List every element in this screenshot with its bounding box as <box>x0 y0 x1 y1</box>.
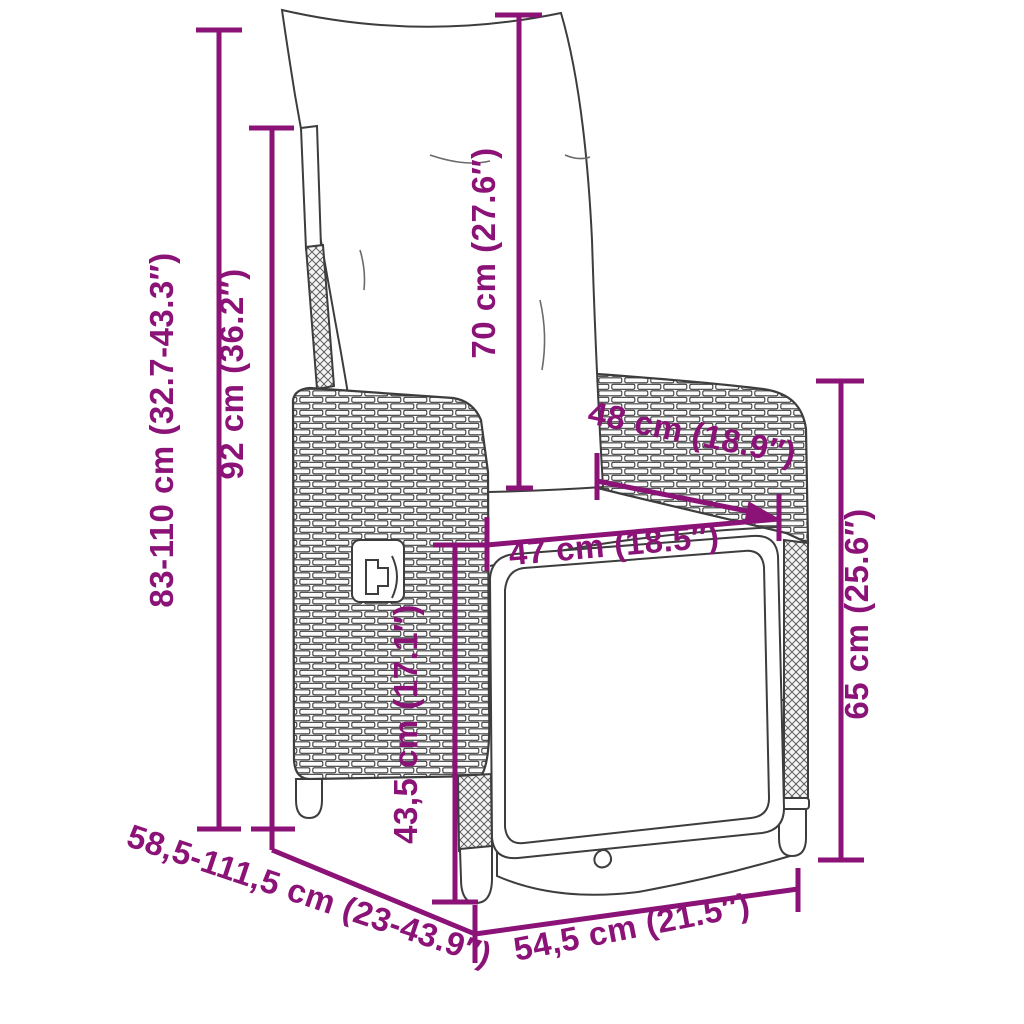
dim-line-adjustable-depth-range: 58,5-111,5 cm (23-43.9″) <box>123 817 497 973</box>
chair-backrest-pole <box>301 126 321 249</box>
dim-label-armrest-height: 65 cm (25.6″) <box>838 508 875 719</box>
chair-right-leg <box>784 540 808 798</box>
dim-label-base-width: 54,5 cm (21.5″) <box>511 886 753 968</box>
chair-right-leg-joint <box>781 798 809 809</box>
diagram-svg: 83-110 cm (32.7-43.3″) 92 cm (36.2″) 70 … <box>0 0 1024 1024</box>
dim-line-backrest-height: 92 cm (36.2″) <box>213 128 295 850</box>
chair-front-left-foot <box>460 846 492 903</box>
dim-label-back-cushion-height: 70 cm (27.6″) <box>465 147 502 358</box>
dim-line-armrest-height: 65 cm (25.6″) <box>816 381 875 860</box>
dim-label-adjustable-depth-range: 58,5-111,5 cm (23-43.9″) <box>123 817 497 973</box>
chair-seat-cushion <box>490 536 784 858</box>
dim-label-backrest-height: 92 cm (36.2″) <box>213 268 250 479</box>
dim-label-adjustable-height-range: 83-110 cm (32.7-43.3″) <box>143 252 180 607</box>
chair-rear-left-foot <box>296 779 322 818</box>
product-dimension-diagram: 83-110 cm (32.7-43.3″) 92 cm (36.2″) 70 … <box>0 0 1024 1024</box>
dim-label-seat-height: 43,5 cm (17.1″) <box>387 604 424 844</box>
chair-front-left-leg <box>458 774 492 851</box>
